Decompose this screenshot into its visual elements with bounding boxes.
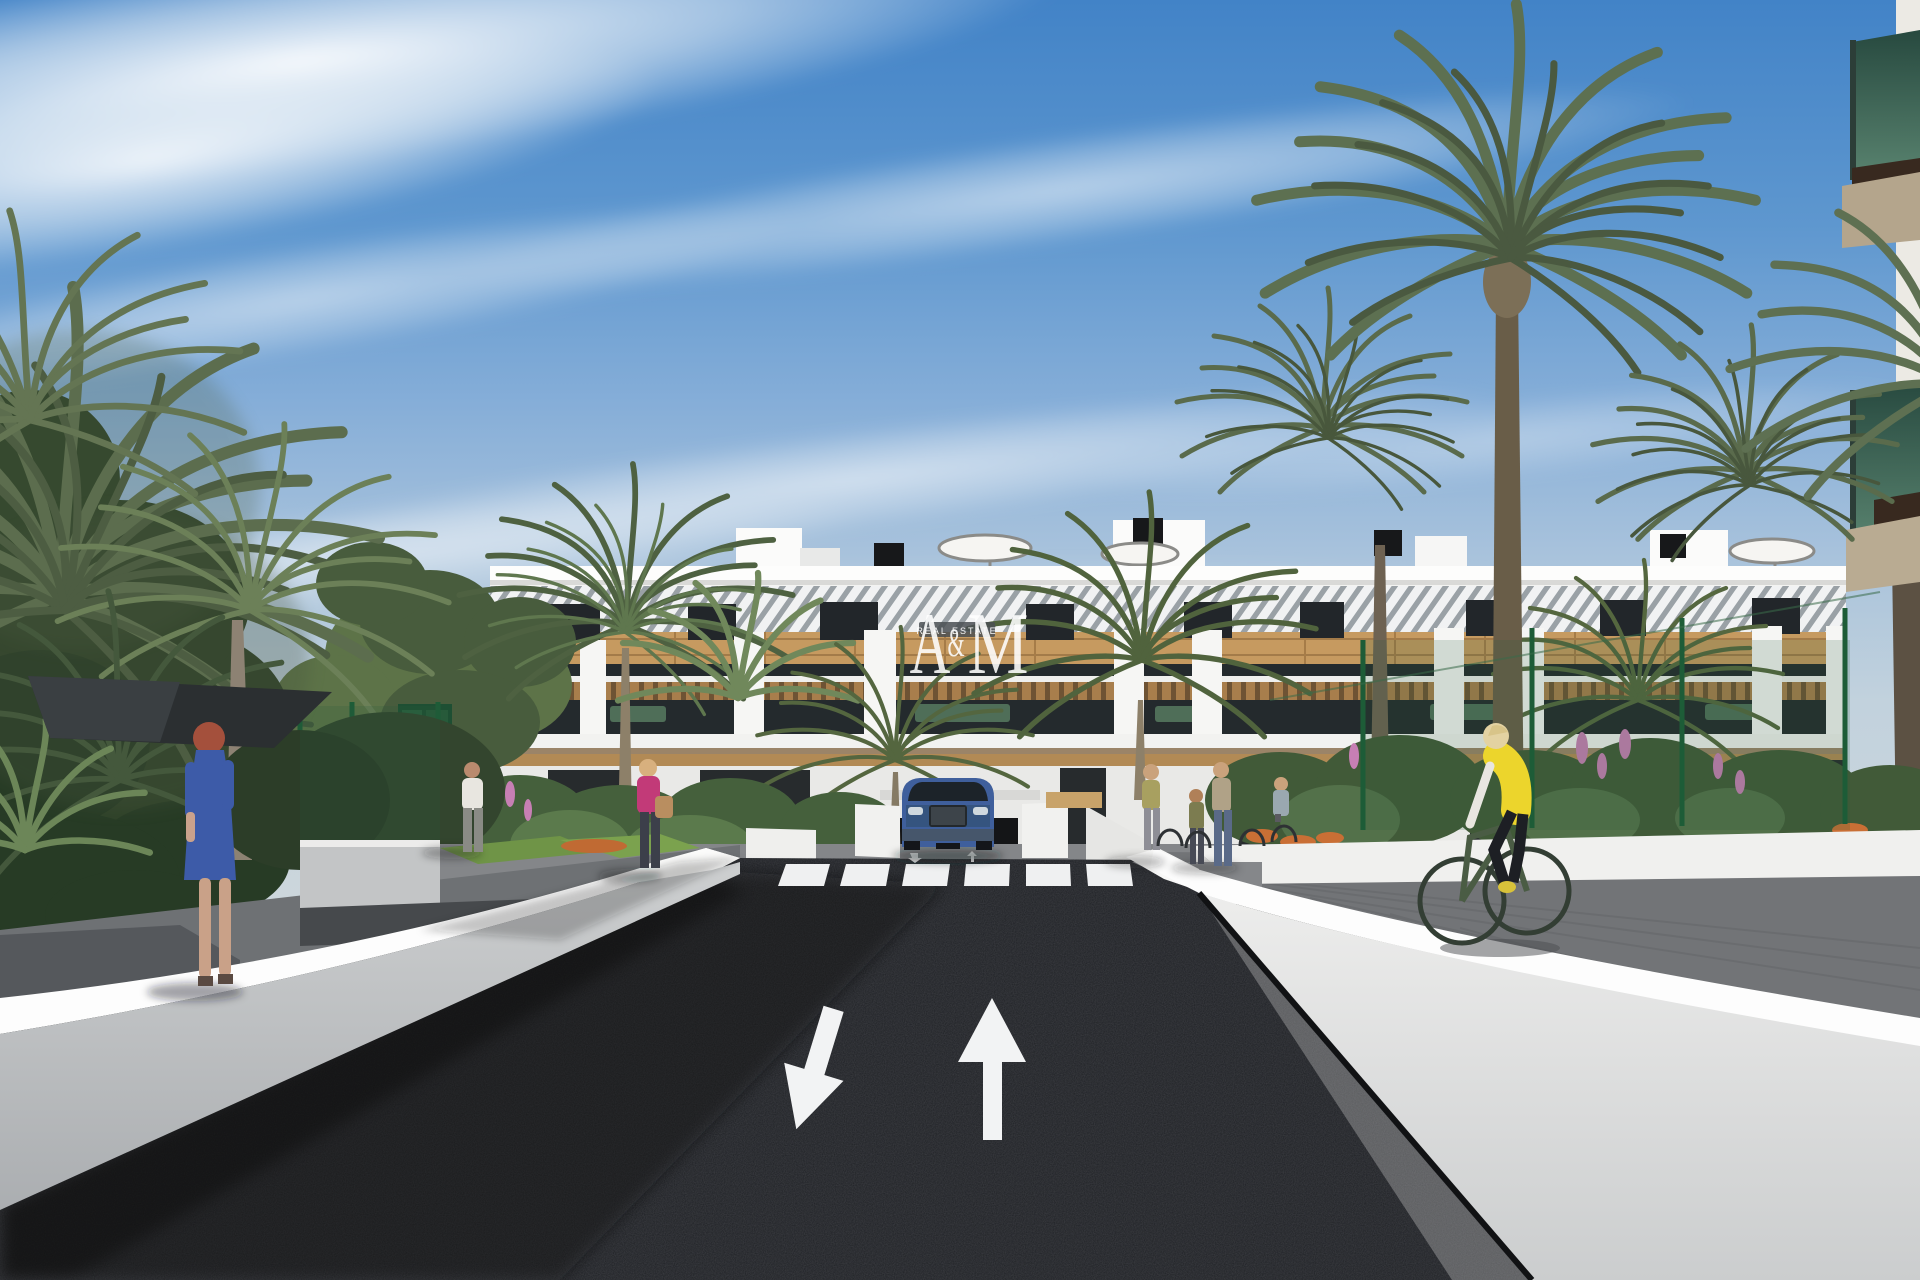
svg-text:&: & xyxy=(947,620,964,665)
svg-text:A: A xyxy=(910,594,951,692)
svg-text:M: M xyxy=(967,596,1028,693)
